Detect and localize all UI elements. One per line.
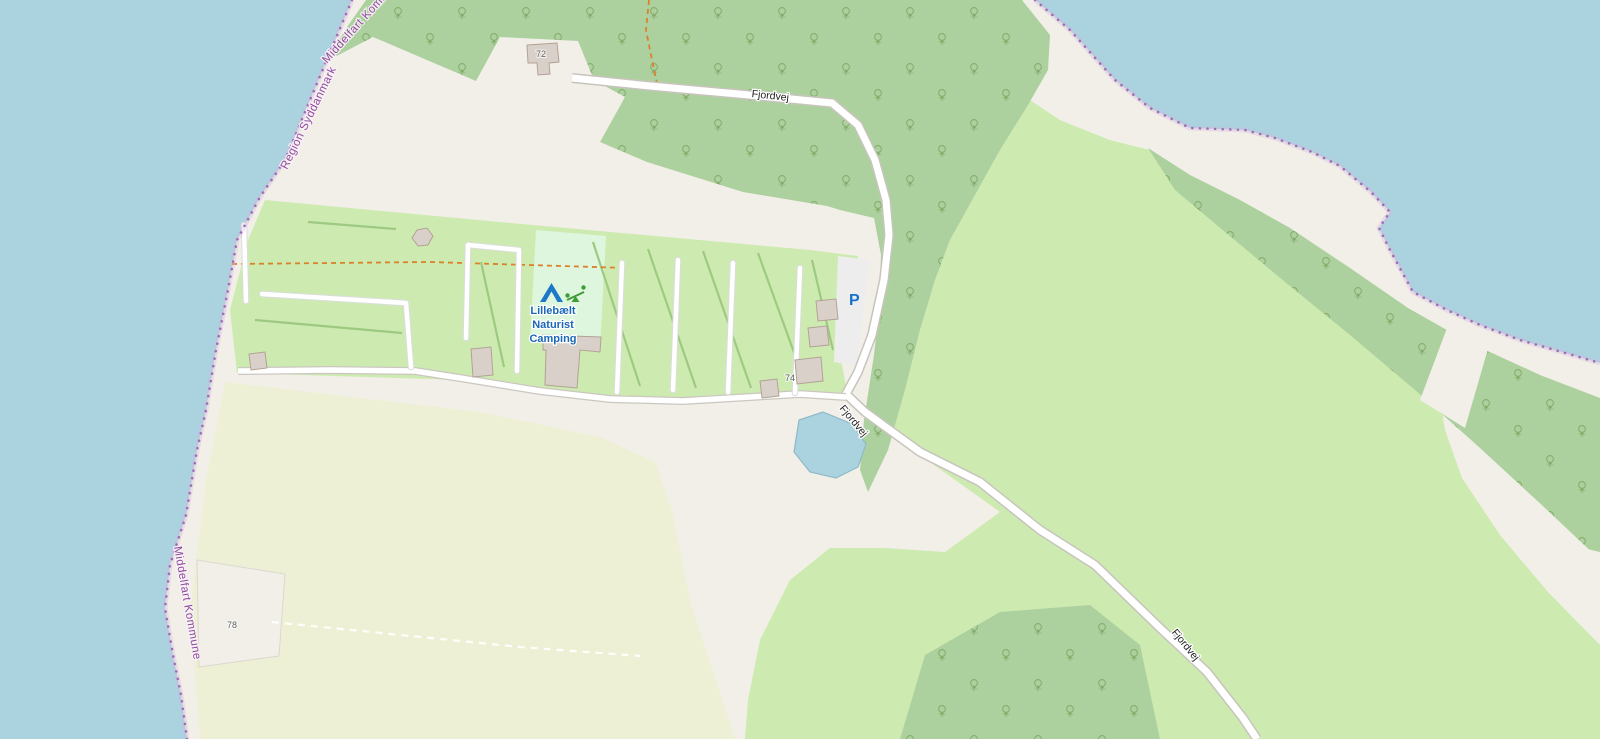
building-74 — [795, 357, 823, 384]
svg-text:Naturist: Naturist — [532, 319, 574, 331]
building-sq-2 — [808, 326, 829, 347]
house-number-72: 72 — [536, 49, 546, 59]
building-small-west — [249, 352, 267, 370]
map-viewport[interactable]: 72 74 78 Region Syddanmark Middelfart Ko… — [0, 0, 1600, 739]
svg-text:Camping: Camping — [529, 333, 576, 345]
parcel-78 — [197, 560, 285, 667]
building-camp-small — [471, 347, 493, 377]
building-sq-3 — [760, 379, 779, 398]
map-canvas[interactable]: 72 74 78 Region Syddanmark Middelfart Ko… — [0, 0, 1600, 739]
camp-site-label: Lillebælt Naturist Camping — [529, 305, 576, 345]
parking-icon: P — [849, 292, 860, 309]
house-number-74: 74 — [785, 373, 795, 383]
svg-text:Lillebælt: Lillebælt — [530, 305, 576, 317]
building-sq-1 — [816, 299, 838, 321]
house-number-78: 78 — [227, 620, 237, 630]
